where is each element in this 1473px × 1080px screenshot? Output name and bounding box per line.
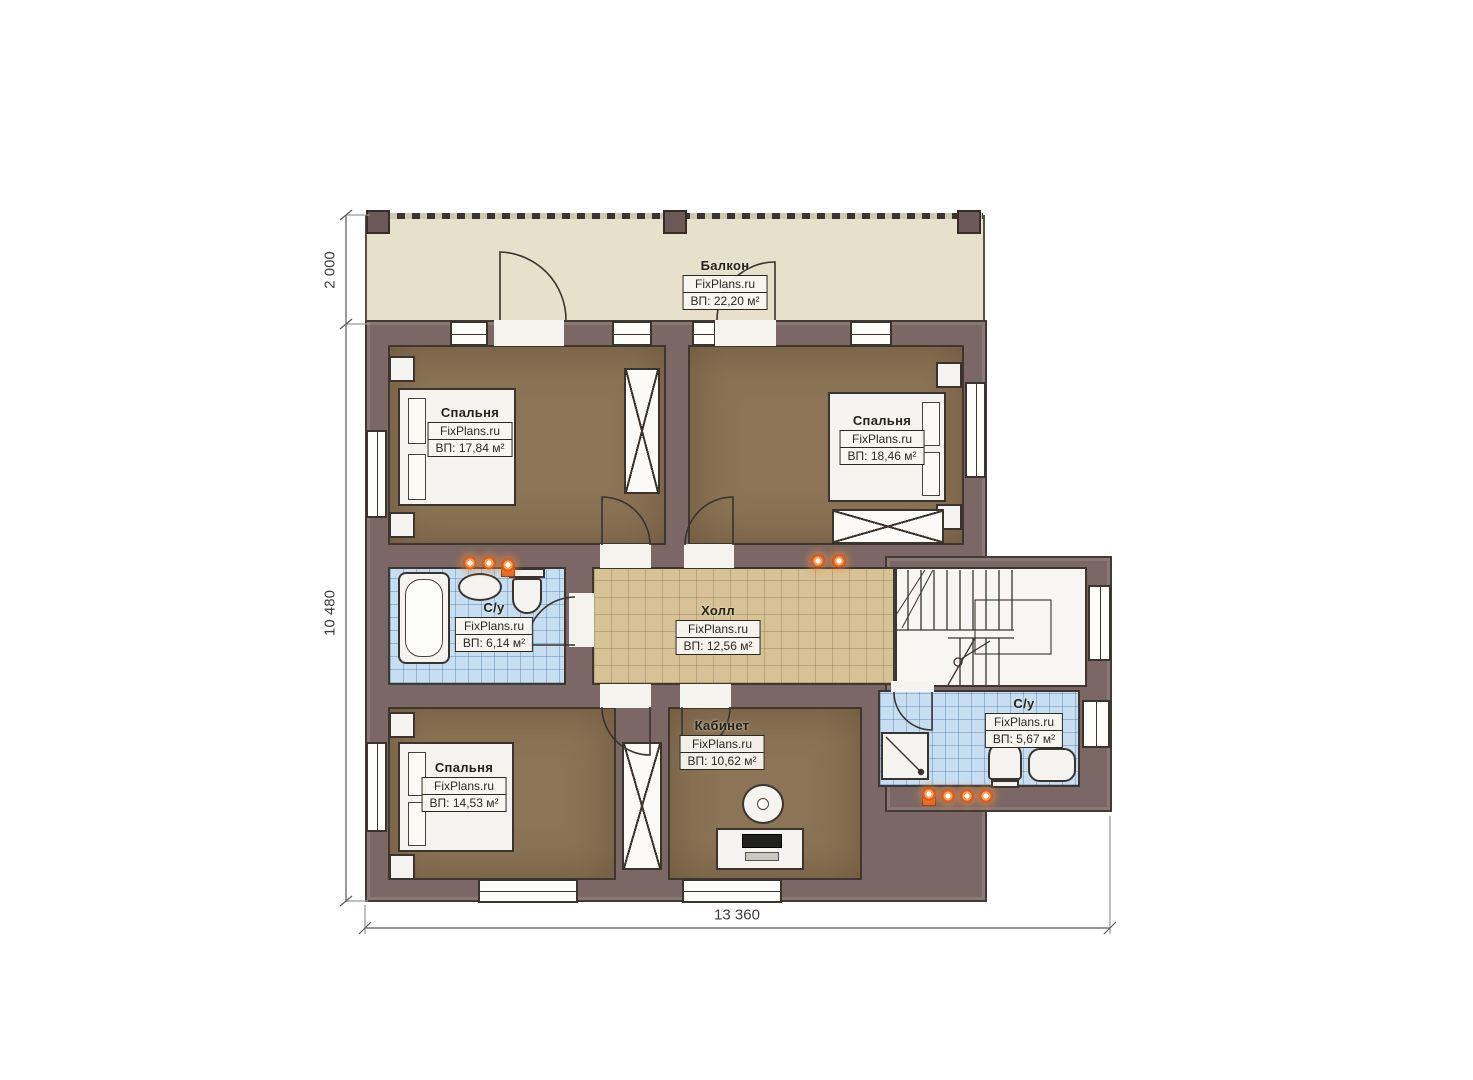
window-balcony-3 [692,321,716,346]
room-name: Кабинет [695,718,750,733]
nightstand [389,854,415,880]
window-left-bottom [366,742,387,832]
room-name: Холл [701,603,735,618]
room-name: Балкон [701,258,750,273]
window-bathroom-right [1082,700,1110,748]
door-gap-bathroom-right [891,681,934,692]
room-name: Спальня [853,413,911,428]
window-bottom-1 [478,879,578,903]
brand-watermark: FixPlans.ru [429,423,512,439]
room-name: Спальня [435,760,493,775]
room-area: ВП: 12,56 м² [677,637,760,654]
brand-watermark: FixPlans.ru [456,618,532,634]
window-right-bedroom [965,382,986,478]
spotlight-icon [463,556,477,570]
desk [716,828,804,870]
room-label-balcony: Балкон FixPlans.ru ВП: 22,20 м² [683,258,768,310]
nightstand [389,712,415,738]
nightstand [936,362,962,388]
room-label-bathroom-right: С/у FixPlans.ru ВП: 5,67 м² [985,696,1063,748]
spotlight-icon [811,554,825,568]
spotlight-icon [979,789,993,803]
balcony-post-right [957,210,981,234]
door-gap-bedroom-bl [600,684,651,708]
room-name: С/у [483,600,504,615]
door-gap-balcony-left [494,320,564,346]
window-balcony-4 [850,321,892,346]
window-balcony-1 [450,321,488,346]
brand-watermark: FixPlans.ru [681,736,764,752]
room-label-bathroom-left: С/у FixPlans.ru ВП: 6,14 м² [455,600,533,652]
sink-right [1028,748,1076,782]
room-name: С/у [1013,696,1034,711]
wardrobe-bottom [622,742,662,870]
spotlight-icon [832,554,846,568]
door-gap-bedroom-tl [600,544,651,568]
room-label-office: Кабинет FixPlans.ru ВП: 10,62 м² [680,718,765,770]
room-area: ВП: 17,84 м² [429,439,512,456]
floor-plan-canvas: Балкон FixPlans.ru ВП: 22,20 м² Спальня … [0,0,1473,1080]
spotlight-icon [501,558,515,572]
nightstand [389,356,415,382]
window-balcony-2 [612,321,652,346]
room-label-hall: Холл FixPlans.ru ВП: 12,56 м² [676,603,761,655]
brand-watermark: FixPlans.ru [677,621,760,637]
brand-watermark: FixPlans.ru [841,431,924,447]
sink-left [458,573,502,601]
room-name: Спальня [441,405,499,420]
window-stair [1088,585,1111,661]
nightstand [389,512,415,538]
door-gap-bathroom-left [569,593,594,647]
door-gap-office [680,684,731,708]
room-area: ВП: 22,20 м² [684,292,767,309]
window-left-top [366,430,387,518]
dimension-building-depth: 10 480 [322,590,339,636]
window-bottom-2 [682,879,782,903]
room-area: ВП: 14,53 м² [423,794,506,811]
dimension-balcony-depth: 2 000 [322,251,339,289]
office-chair [742,784,784,824]
room-area: ВП: 5,67 м² [986,730,1062,747]
room-label-bedroom-bl: Спальня FixPlans.ru ВП: 14,53 м² [422,760,507,812]
spotlight-icon [482,556,496,570]
spotlight-icon [941,789,955,803]
door-gap-balcony-right [715,320,776,346]
wardrobe-top-left [624,368,660,494]
balcony-post-left [366,210,390,234]
room-area: ВП: 10,62 м² [681,752,764,769]
brand-watermark: FixPlans.ru [986,714,1062,730]
bathtub [398,572,450,664]
brand-watermark: FixPlans.ru [423,778,506,794]
room-label-bedroom-tr: Спальня FixPlans.ru ВП: 18,46 м² [840,413,925,465]
spotlight-icon [960,789,974,803]
room-label-bedroom-tl: Спальня FixPlans.ru ВП: 17,84 м² [428,405,513,457]
shower-tray [881,732,929,780]
balcony-post-middle [663,210,687,234]
toilet-tank-right [991,780,1019,788]
spotlight-icon [922,787,936,801]
room-area: ВП: 6,14 м² [456,634,532,651]
room-area: ВП: 18,46 м² [841,447,924,464]
door-gap-bedroom-tr [684,544,734,568]
brand-watermark: FixPlans.ru [684,276,767,292]
wardrobe-top-right [832,509,944,544]
room-staircase [895,567,1087,687]
dimension-building-width: 13 360 [714,907,760,924]
